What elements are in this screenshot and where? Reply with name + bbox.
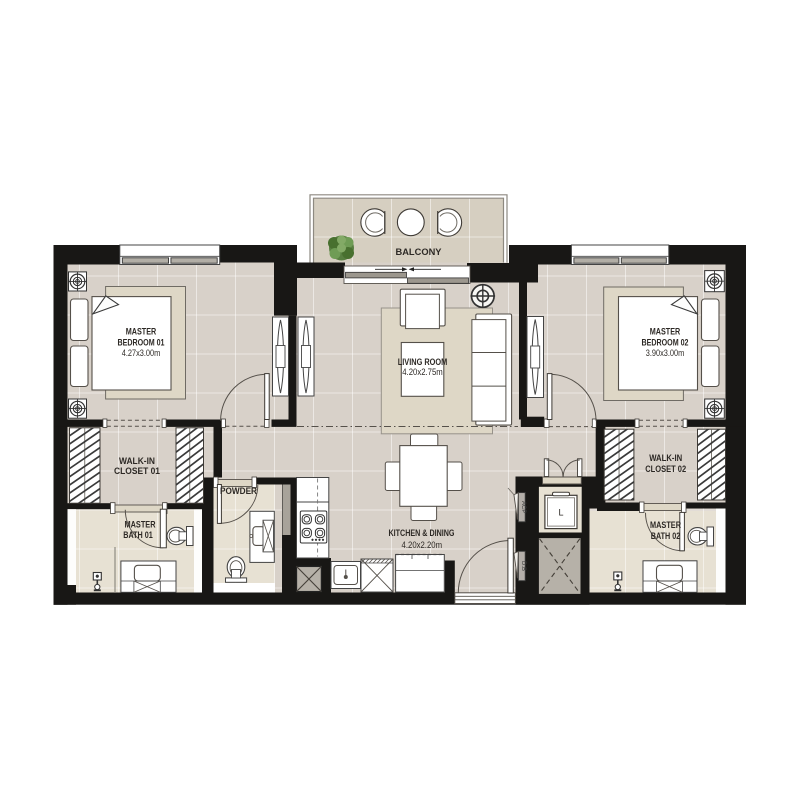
svg-text:BEDROOM 01: BEDROOM 01 [118, 338, 165, 348]
svg-text:BATH 02: BATH 02 [651, 531, 681, 541]
svg-text:BATH 01: BATH 01 [123, 530, 153, 540]
svg-text:MASTER: MASTER [650, 326, 681, 336]
svg-text:KITCHEN & DINING: KITCHEN & DINING [389, 528, 455, 538]
svg-text:L: L [558, 508, 563, 518]
svg-text:MASTER: MASTER [650, 520, 681, 530]
svg-text:CLOSET 01: CLOSET 01 [114, 466, 160, 476]
svg-text:4.20x2.75m: 4.20x2.75m [402, 367, 443, 377]
svg-text:WALK-IN: WALK-IN [649, 453, 682, 463]
svg-text:POWDER: POWDER [220, 486, 257, 496]
svg-text:MASTER: MASTER [125, 520, 156, 530]
svg-text:ACP: ACP [520, 501, 526, 513]
svg-text:4.20x2.20m: 4.20x2.20m [402, 540, 443, 550]
svg-text:LIVING ROOM: LIVING ROOM [398, 357, 448, 367]
svg-text:D.B: D.B [520, 561, 526, 571]
svg-text:BALCONY: BALCONY [396, 247, 443, 258]
svg-text:4.27x3.00m: 4.27x3.00m [122, 348, 161, 358]
svg-text:CLOSET 02: CLOSET 02 [645, 464, 686, 474]
svg-text:WALK-IN: WALK-IN [119, 456, 155, 466]
svg-text:BEDROOM 02: BEDROOM 02 [642, 338, 689, 348]
svg-text:3.90x3.00m: 3.90x3.00m [646, 348, 685, 358]
svg-text:MASTER: MASTER [126, 326, 157, 336]
